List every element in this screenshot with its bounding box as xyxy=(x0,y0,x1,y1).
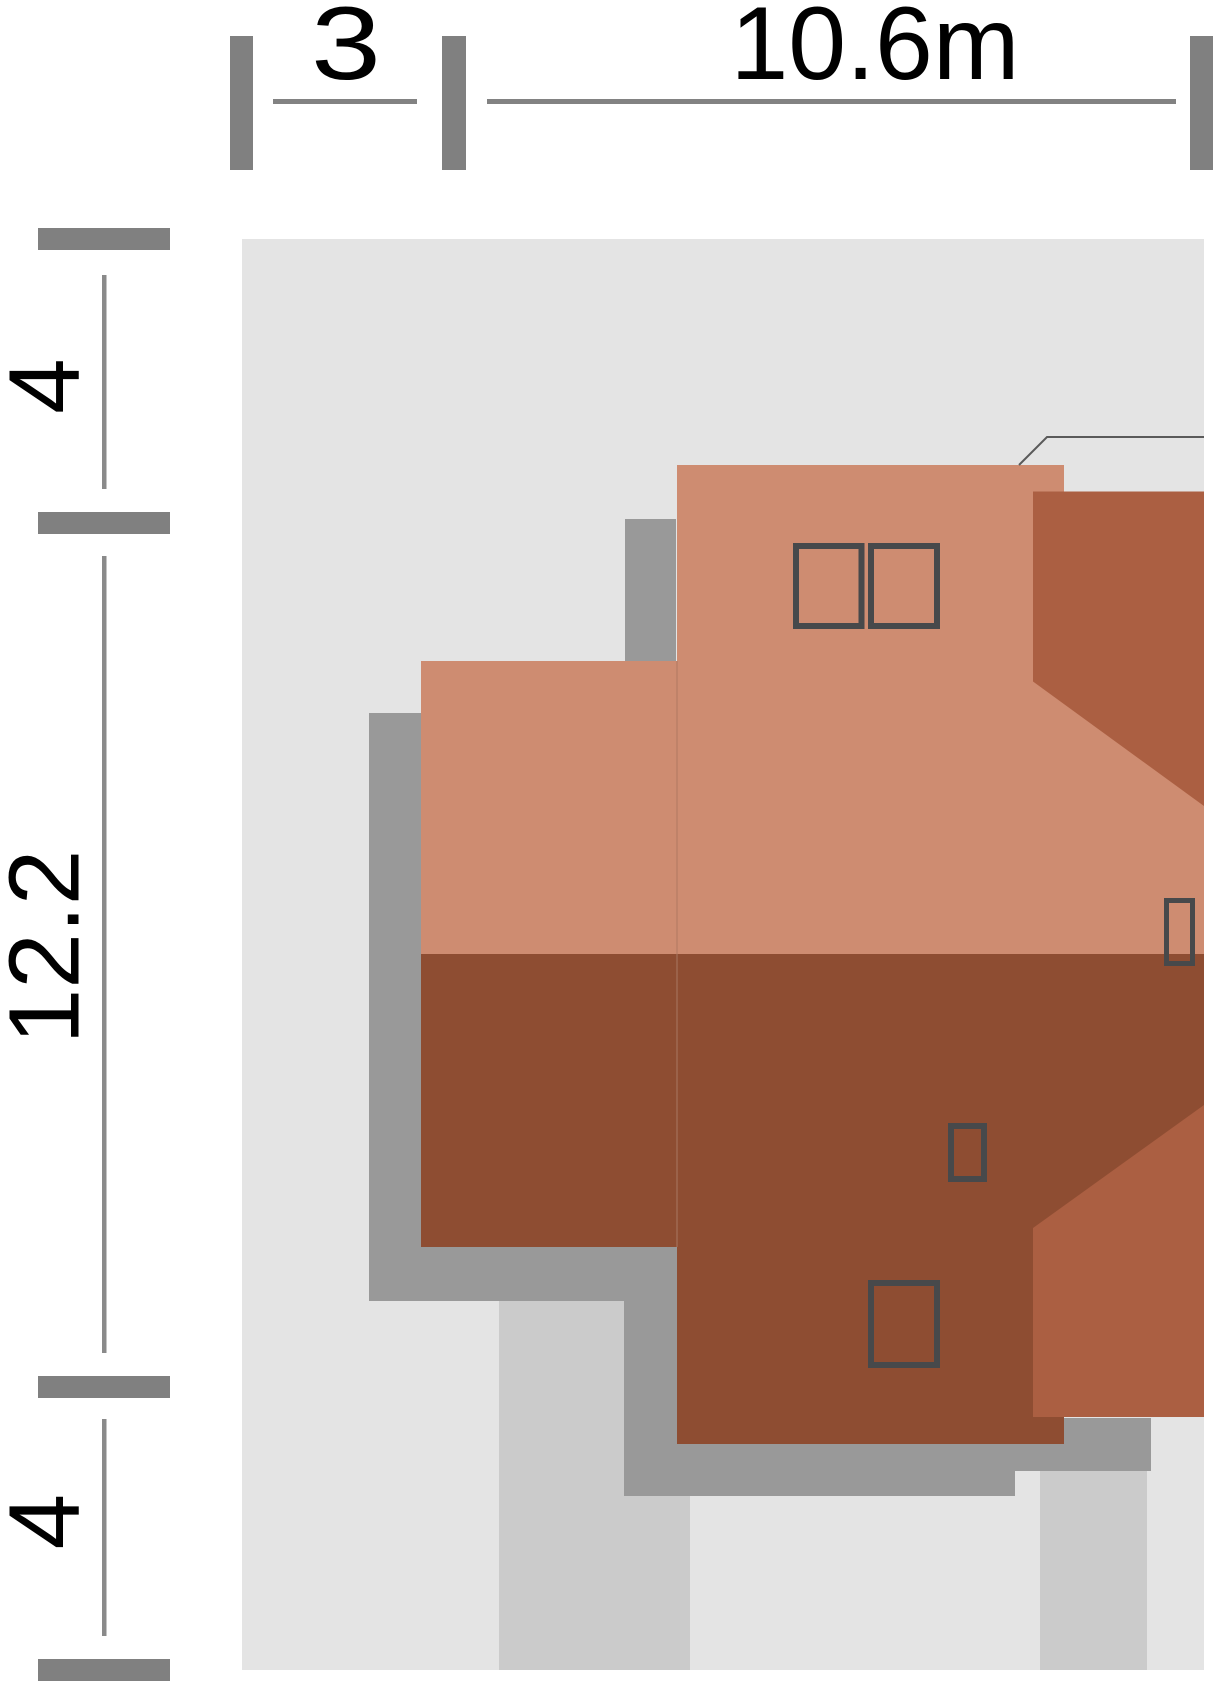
svg-text:4: 4 xyxy=(0,358,101,414)
svg-text:3: 3 xyxy=(311,0,381,102)
svg-text:4: 4 xyxy=(0,1494,101,1550)
svg-text:10.6m: 10.6m xyxy=(730,0,1019,102)
svg-text:12.2: 12.2 xyxy=(0,850,101,1045)
